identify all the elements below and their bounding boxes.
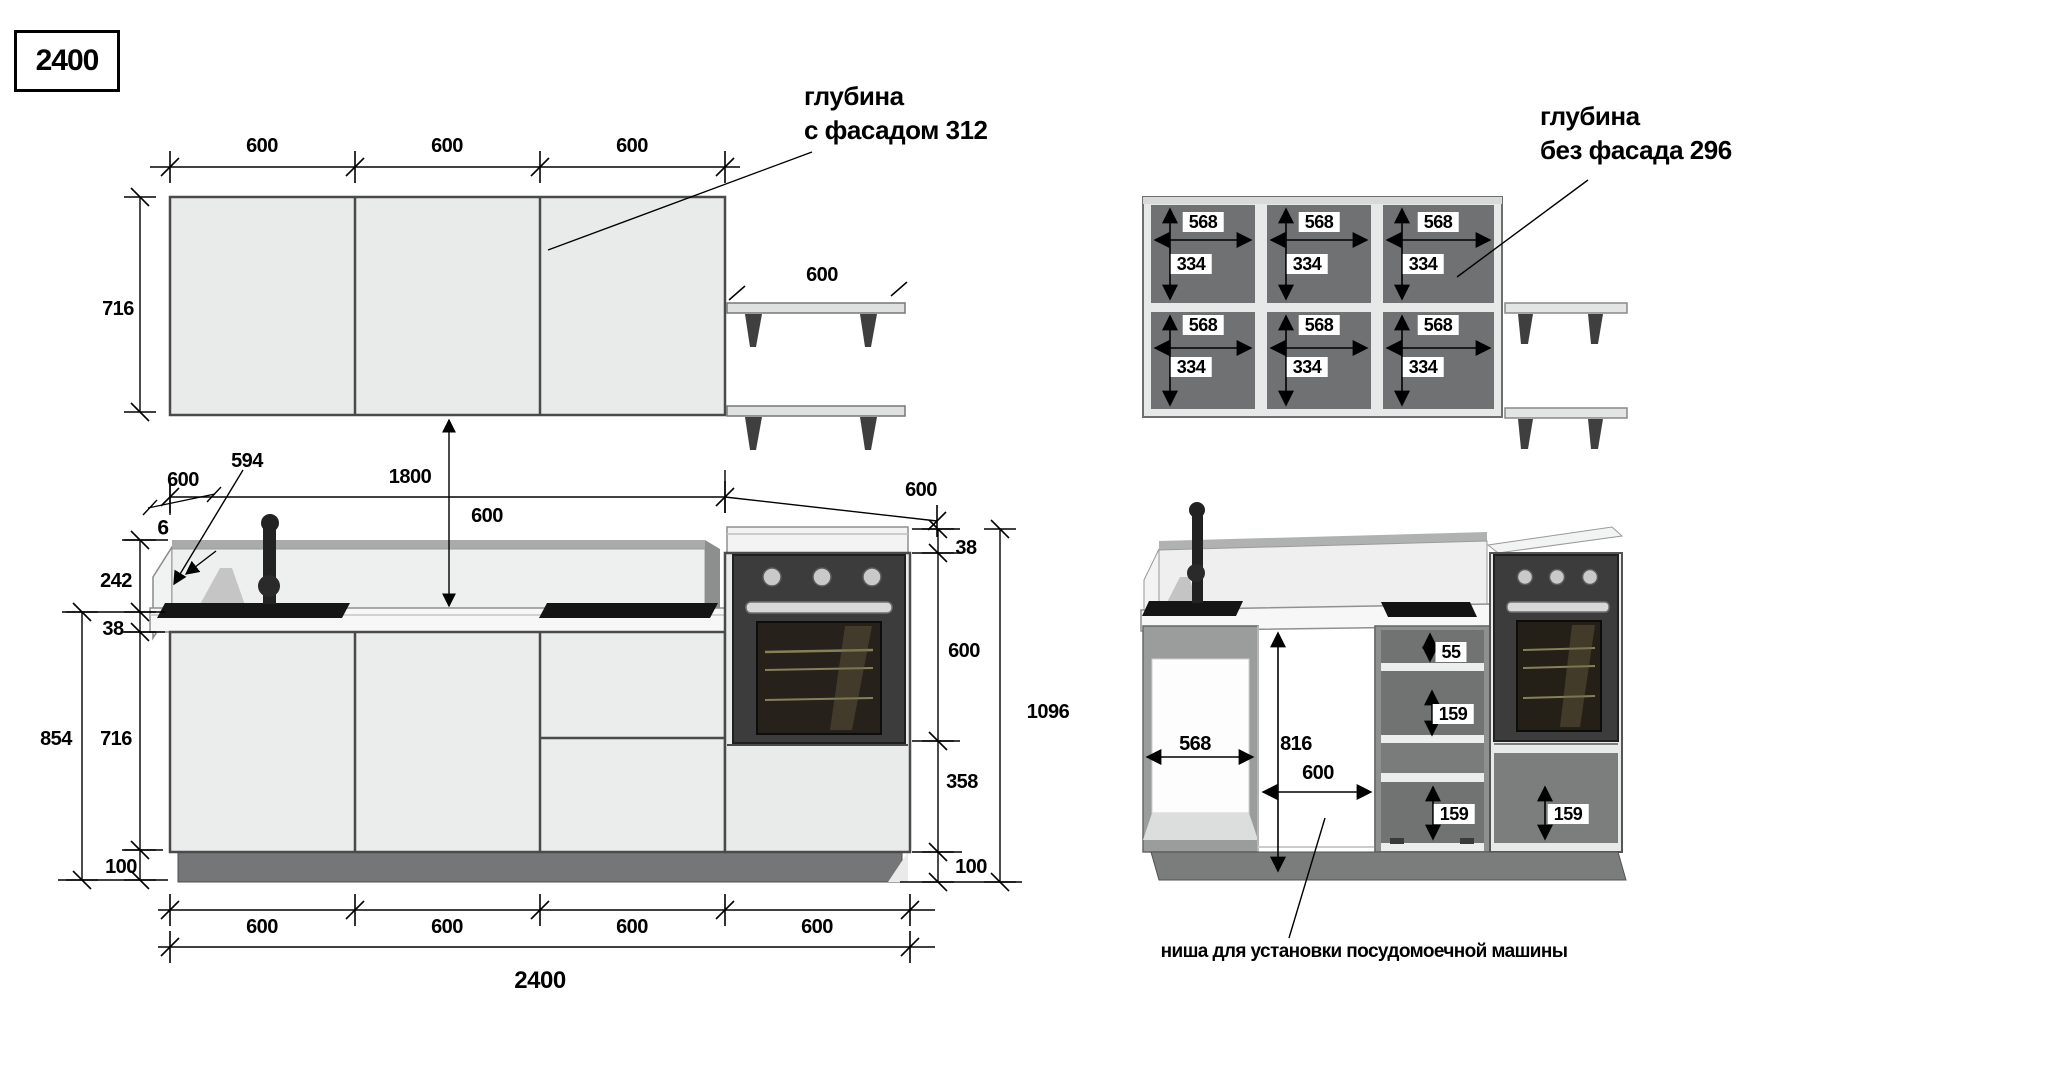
carcass-depth-callout-line2: без фасада 296 xyxy=(1540,134,1732,168)
base-section3-dim: 600 xyxy=(616,917,648,937)
bottom-drawer-dim: 159 xyxy=(1434,804,1475,824)
top-drawer-dim: 55 xyxy=(1435,642,1466,662)
hob-section-dim: 600 xyxy=(905,480,937,500)
front-depth-callout-line2: с фасадом 312 xyxy=(804,114,988,148)
carcass-depth-callout: глубина без фасада 296 xyxy=(1540,100,1732,168)
sink xyxy=(157,603,350,618)
run-1800-dim: 1800 xyxy=(389,467,432,487)
upper-height-dim: 716 xyxy=(102,299,134,319)
sec2-top-height: 334 xyxy=(1287,254,1328,274)
base-section2-dim: 600 xyxy=(431,917,463,937)
carcass-height-dim: 716 xyxy=(100,729,132,749)
sec1-bottom-height: 334 xyxy=(1171,357,1212,377)
front-depth-callout-line1: глубина xyxy=(804,80,988,114)
niche-width-dim: 600 xyxy=(1302,763,1334,783)
upper-door2-dim: 600 xyxy=(431,136,463,156)
hob xyxy=(539,603,718,618)
carcass-depth-callout-line1: глубина xyxy=(1540,100,1732,134)
sec2-top-width: 568 xyxy=(1299,212,1340,232)
right-wall-shelves xyxy=(1505,303,1627,449)
sec3-bottom-height: 334 xyxy=(1403,357,1444,377)
worktop-depth-dim: 600 xyxy=(167,470,199,490)
upper-door3-dim: 600 xyxy=(616,136,648,156)
total-length-value: 2400 xyxy=(36,44,99,78)
front-depth-callout: глубина с фасадом 312 xyxy=(804,80,988,148)
left-wall-shelves xyxy=(727,282,907,450)
dishwasher-niche-note: ниша для установки посудомоечной машины xyxy=(1161,941,1568,963)
sec1-bottom-width: 568 xyxy=(1183,315,1224,335)
total-length-title: 2400 xyxy=(14,30,120,92)
sec1-top-width: 568 xyxy=(1183,212,1224,232)
base-section4-dim: 600 xyxy=(801,917,833,937)
offset-dim: 6 xyxy=(157,518,168,539)
tower-worktop-dim: 38 xyxy=(955,538,976,558)
oven-height-dim: 600 xyxy=(948,641,980,661)
tower-plinth-dim: 100 xyxy=(955,857,987,877)
left-oven-tower xyxy=(725,527,910,852)
oven-drawer-height-dim: 358 xyxy=(946,772,978,792)
worktop-thickness-dim: 38 xyxy=(102,619,123,639)
base-section1-dim: 600 xyxy=(246,917,278,937)
right-plinth xyxy=(1151,852,1626,880)
tower-total-height-dim: 1096 xyxy=(1027,702,1070,722)
mid-drawer-dim: 159 xyxy=(1433,704,1474,724)
upper-door1-dim: 600 xyxy=(246,136,278,156)
base-total-height-dim: 854 xyxy=(40,729,72,749)
plinth-height-dim: 100 xyxy=(105,857,137,877)
left-upper-cabinets xyxy=(170,197,725,415)
shelf-width-dim: 600 xyxy=(806,265,838,285)
sec3-bottom-width: 568 xyxy=(1418,315,1459,335)
niche-height-dim: 816 xyxy=(1280,734,1312,754)
total-width-dim: 2400 xyxy=(514,969,565,993)
side-panel-dim: 594 xyxy=(231,451,263,471)
sink-cabinet-width-dim: 568 xyxy=(1179,734,1211,754)
splash-height-dim: 242 xyxy=(100,571,132,591)
right-hob xyxy=(1381,602,1477,617)
kitchen-drawing: 2400 600 600 600 716 600 глубина с фасад… xyxy=(0,0,2052,1074)
sec1-top-height: 334 xyxy=(1171,254,1212,274)
sec3-top-height: 334 xyxy=(1403,254,1444,274)
upper-lower-gap-dim: 600 xyxy=(471,506,503,526)
drawing-linework xyxy=(0,0,2052,1074)
dishwasher-niche xyxy=(1258,626,1375,852)
sec2-bottom-height: 334 xyxy=(1287,357,1328,377)
oven-drawer-dim: 159 xyxy=(1548,804,1589,824)
sec3-top-width: 568 xyxy=(1418,212,1459,232)
sec2-bottom-width: 568 xyxy=(1299,315,1340,335)
